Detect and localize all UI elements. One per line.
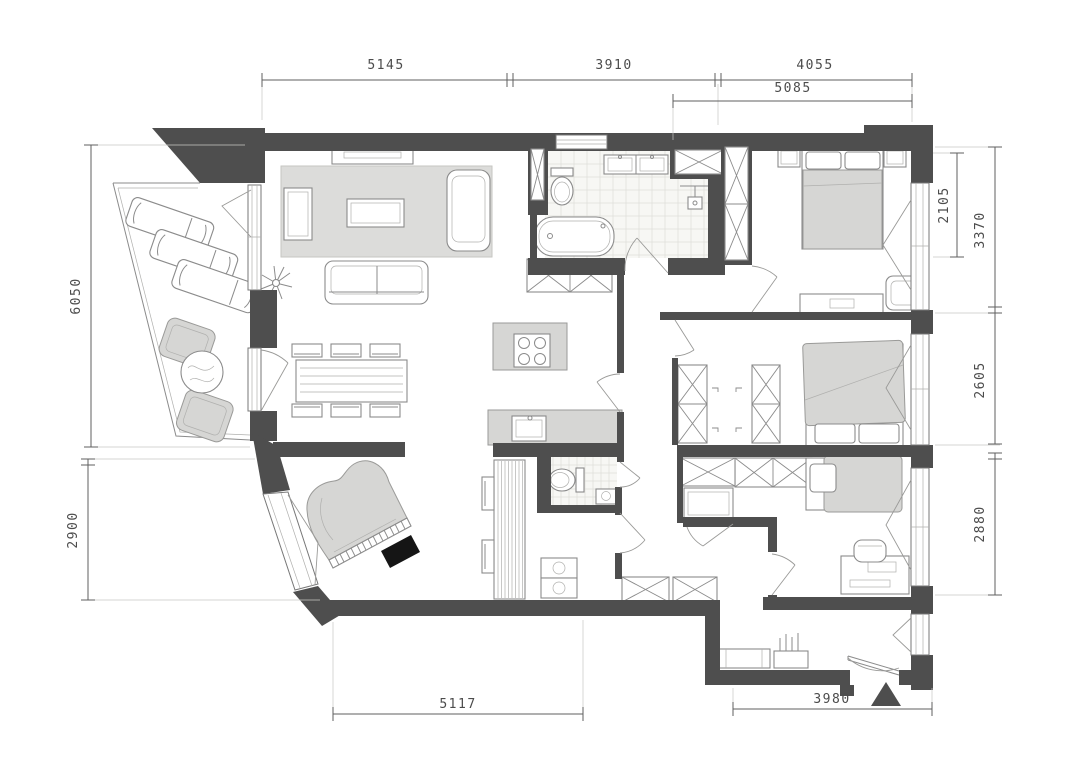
wall-kitchen-south — [493, 443, 622, 457]
desk-chair — [854, 540, 886, 562]
wall-bed3-door — [768, 527, 777, 552]
wall-wc-laundry — [537, 505, 622, 513]
piano-bench — [381, 535, 420, 568]
wc-sink — [596, 489, 616, 504]
dining-area — [292, 344, 407, 417]
wall-bottom-center — [315, 600, 720, 616]
washer — [541, 558, 577, 578]
dim-label: 5145 — [367, 58, 404, 73]
tv-console — [332, 149, 413, 164]
dim-label: 3910 — [595, 58, 632, 73]
dim-label: 4055 — [796, 58, 833, 73]
wall-corridor — [617, 412, 624, 462]
wall-east-pier — [911, 310, 933, 334]
utility-closet — [681, 458, 735, 519]
east-window-entry — [893, 614, 929, 655]
wall-east-pier — [911, 127, 933, 183]
dryer — [541, 578, 577, 598]
master-bedroom-door — [752, 266, 777, 312]
balcony — [113, 183, 261, 444]
dim-label: 2605 — [973, 361, 988, 398]
dim-right-inner: 2105 — [937, 153, 964, 257]
dresser — [800, 294, 883, 313]
dining-balcony-door — [248, 348, 288, 411]
wall-wc-west — [537, 453, 551, 510]
wall-entry-bottom — [705, 670, 850, 685]
dim-label: 6050 — [69, 277, 84, 314]
wall-east-pier — [911, 445, 933, 468]
dim-label: 2105 — [937, 186, 952, 223]
wardrobe-handles — [712, 388, 742, 432]
coffee-table — [347, 199, 404, 227]
pantry-closet — [482, 460, 525, 599]
wall-bath-south — [528, 258, 625, 275]
dining-table — [296, 360, 407, 402]
wall-west-angled-pier — [252, 432, 290, 494]
dim-top: 5145 3910 4055 — [262, 58, 912, 87]
wall-corridor — [615, 553, 622, 579]
hall-cabinet — [622, 577, 717, 602]
wardrobe — [678, 365, 707, 443]
dim-left: 6050 2900 — [66, 145, 98, 600]
wall-corridor — [617, 258, 624, 373]
master-wardrobe-column — [721, 143, 752, 265]
wall-top-left-angled — [152, 128, 265, 183]
wall-utility-west — [677, 457, 683, 523]
wc-toilet — [549, 469, 575, 491]
wall-utility-south — [683, 517, 777, 527]
third-bedroom-door — [772, 554, 795, 595]
bathroom-closet — [670, 145, 728, 179]
balcony-round-table — [181, 351, 223, 393]
side-table — [284, 188, 312, 240]
wall-west-pier — [250, 290, 277, 348]
kitchen-island — [493, 323, 567, 370]
dim-label: 3980 — [813, 692, 850, 707]
laundry-door — [620, 513, 645, 553]
wall-bath-west-thin — [530, 215, 537, 258]
kitchen-door — [597, 374, 620, 412]
piano-room — [307, 460, 525, 599]
single-bed — [806, 456, 902, 512]
sofa — [325, 261, 428, 304]
dim-top-secondary: 5085 — [673, 81, 912, 108]
floor-plan-drawing: 5145 3910 4055 5085 6050 2900 2105 3370 … — [0, 0, 1092, 763]
utility-door — [687, 524, 733, 546]
wall-living-piano — [273, 442, 405, 457]
kitchen-counter — [488, 410, 622, 445]
wall-east-pier — [911, 655, 933, 690]
toilet — [551, 168, 573, 205]
lounge-armchair — [447, 170, 490, 251]
dim-label: 5117 — [439, 697, 476, 712]
wall-bed3-door — [768, 595, 777, 608]
double-bed-middle — [803, 340, 906, 446]
bathroom-window — [556, 135, 607, 149]
wardrobe-row — [735, 458, 812, 487]
dim-bottom: 5117 3980 — [333, 692, 932, 721]
bathtub — [535, 217, 614, 256]
dim-label: 3370 — [973, 211, 988, 248]
kitchen — [488, 259, 622, 445]
grand-piano — [307, 461, 420, 568]
dim-label: 5085 — [774, 81, 811, 96]
dim-label: 2900 — [66, 511, 81, 548]
middle-bedroom — [678, 340, 905, 446]
wall-master-south — [660, 312, 933, 320]
dim-label: 2880 — [973, 505, 988, 542]
wall-midbed-south — [677, 445, 933, 457]
wc-cistern — [576, 468, 584, 492]
wall-bed3-south — [763, 597, 911, 610]
wardrobe — [752, 365, 780, 443]
wall-east-pier — [911, 586, 933, 614]
entry-rack — [774, 633, 808, 668]
entrance-marker — [871, 682, 901, 706]
floor-plan-canvas: 5145 3910 4055 5085 6050 2900 2105 3370 … — [0, 0, 1092, 763]
entry-hall — [718, 633, 901, 706]
middle-bedroom-door — [675, 320, 694, 356]
double-washbasin — [604, 155, 668, 174]
master-bedroom — [778, 148, 924, 313]
bath-wall-niche-closet — [531, 149, 544, 200]
balcony-armchair — [174, 388, 235, 444]
dim-right: 3370 2605 2880 — [973, 147, 1002, 595]
double-bed-master — [802, 150, 883, 249]
entry-bench — [718, 649, 770, 668]
wc-door — [620, 462, 640, 487]
wall-midbed-west — [672, 358, 678, 445]
living-room — [261, 149, 492, 304]
laundry — [541, 558, 577, 598]
entrance-door — [848, 656, 899, 675]
